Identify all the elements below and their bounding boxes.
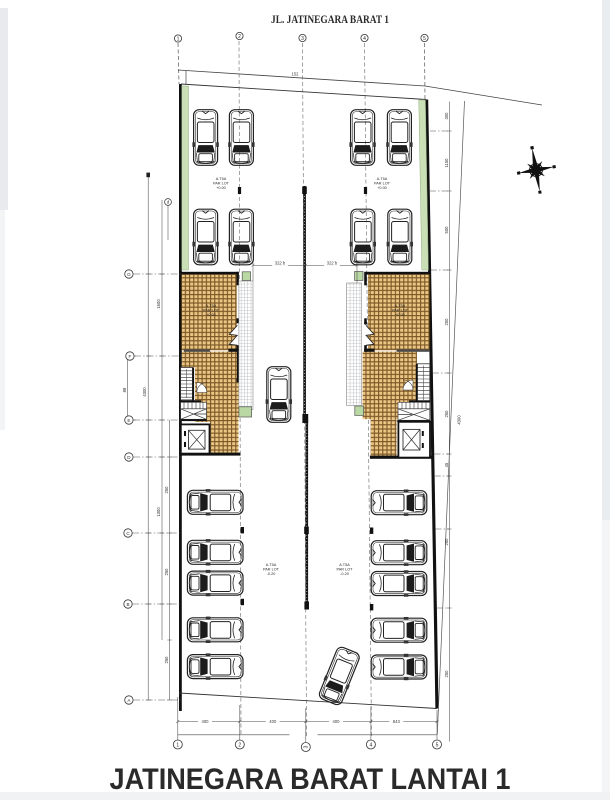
svg-text:250: 250 (444, 538, 449, 546)
svg-text:4300: 4300 (142, 387, 147, 397)
svg-text:G: G (127, 272, 131, 277)
svg-text:152: 152 (292, 72, 300, 77)
svg-text:E: E (127, 418, 130, 423)
svg-text:F: F (128, 354, 131, 359)
svg-text:+0.00: +0.00 (206, 313, 216, 317)
svg-text:A.T5A: A.T5A (377, 177, 388, 181)
svg-text:250: 250 (164, 568, 169, 576)
svg-text:300: 300 (444, 112, 449, 120)
svg-text:4: 4 (363, 36, 366, 42)
svg-text:B: B (126, 602, 129, 607)
svg-text:400: 400 (333, 719, 341, 724)
svg-text:250: 250 (444, 670, 449, 678)
svg-text:400: 400 (202, 719, 210, 724)
svg-text:4: 4 (370, 742, 373, 748)
svg-text:PAR LOT: PAR LOT (337, 568, 354, 572)
svg-text:322 b: 322 b (275, 261, 286, 266)
svg-text:+0.00: +0.00 (377, 186, 387, 190)
svg-text:JATINEGARA BARAT LANTAI 1: JATINEGARA BARAT LANTAI 1 (110, 763, 511, 796)
svg-text:A.T5A: A.T5A (206, 304, 217, 308)
svg-text:4300: 4300 (457, 415, 462, 425)
svg-text:1: 1 (177, 36, 180, 42)
svg-text:-0.20: -0.20 (340, 572, 349, 576)
svg-text:PAR LOT: PAR LOT (392, 309, 409, 313)
svg-text:3: 3 (301, 36, 304, 42)
svg-text:2: 2 (238, 34, 241, 40)
svg-text:500: 500 (444, 226, 449, 234)
svg-text:A.T5A: A.T5A (266, 563, 277, 567)
svg-text:250: 250 (444, 410, 449, 418)
svg-text:PAR LOT: PAR LOT (203, 309, 220, 313)
svg-text:PAR LOT: PAR LOT (374, 182, 391, 186)
svg-text:5: 5 (423, 36, 426, 42)
svg-text:1600: 1600 (156, 299, 161, 309)
svg-text:-0.20: -0.20 (267, 572, 276, 576)
svg-text:PAR LOT: PAR LOT (213, 182, 230, 186)
svg-text:1300: 1300 (156, 507, 161, 517)
svg-text:200: 200 (444, 318, 449, 326)
svg-text:2: 2 (238, 742, 241, 748)
svg-text:A.T5A: A.T5A (339, 563, 350, 567)
svg-text:PAR LOT: PAR LOT (263, 568, 280, 572)
svg-text:1: 1 (176, 742, 179, 748)
svg-text:250: 250 (164, 486, 169, 494)
svg-text:A.T5A: A.T5A (395, 304, 406, 308)
svg-text:3: 3 (304, 745, 310, 748)
svg-text:1150: 1150 (444, 158, 449, 168)
svg-text:400: 400 (269, 719, 277, 724)
svg-text:+0.00: +0.00 (216, 186, 226, 190)
svg-text:250: 250 (164, 656, 169, 664)
svg-text:843: 843 (393, 719, 401, 724)
svg-text:+0.00: +0.00 (395, 313, 405, 317)
svg-text:45: 45 (444, 462, 449, 467)
svg-text:322 b: 322 b (327, 261, 338, 266)
svg-text:5: 5 (436, 742, 439, 748)
svg-text:A.T5A: A.T5A (216, 177, 227, 181)
svg-text:JL. JATINEGARA BARAT 1: JL. JATINEGARA BARAT 1 (271, 14, 389, 26)
svg-text:88: 88 (122, 387, 127, 392)
